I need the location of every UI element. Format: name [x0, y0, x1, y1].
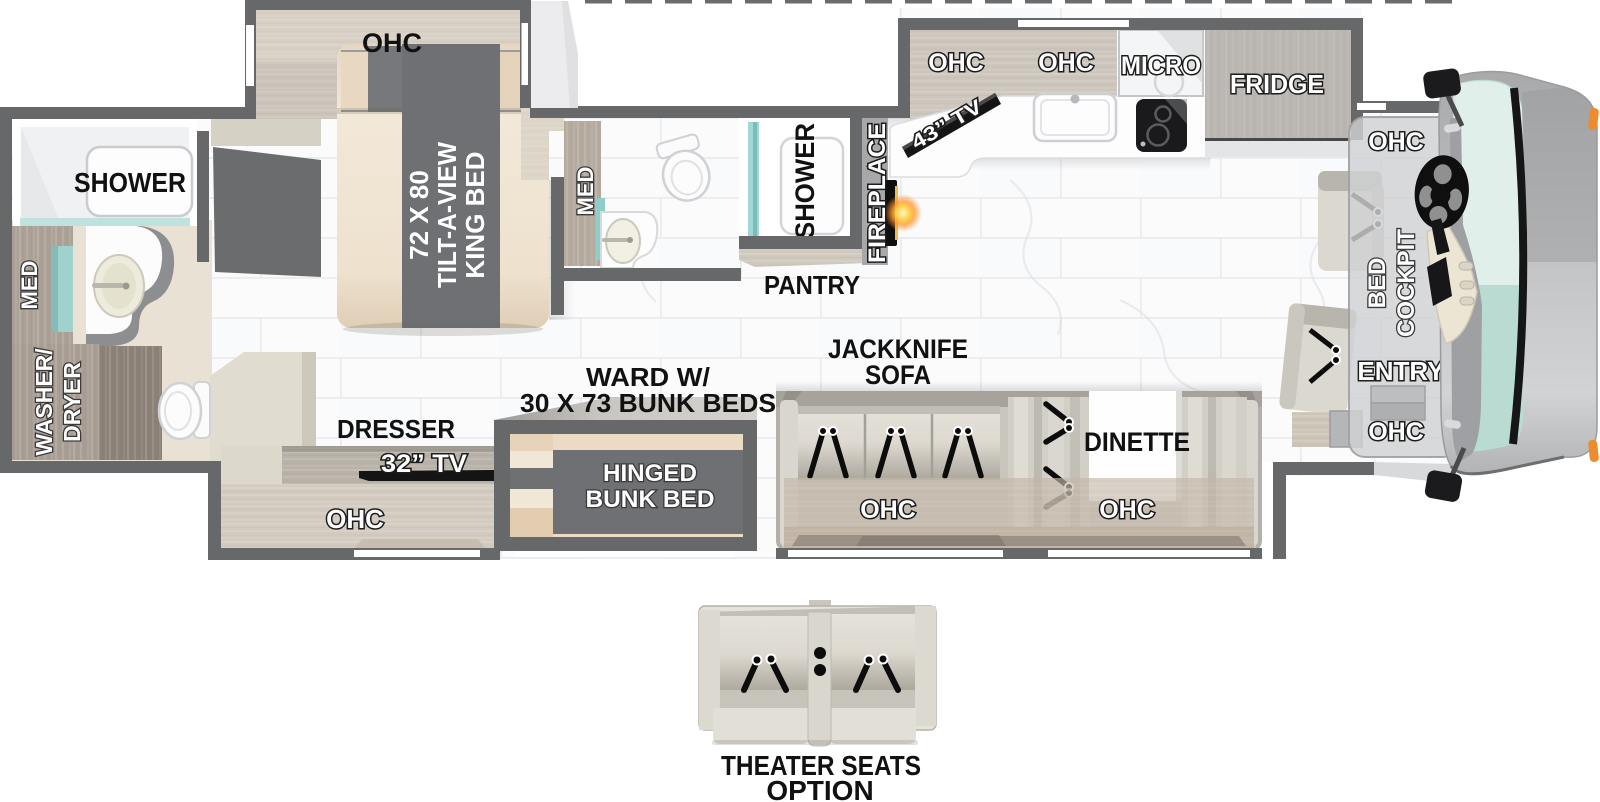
svg-text:ENTRY: ENTRY: [1357, 356, 1444, 386]
svg-text:SOFA: SOFA: [865, 360, 931, 390]
svg-text:72 X 80: 72 X 80: [404, 170, 434, 260]
svg-text:OHC: OHC: [1099, 496, 1155, 524]
svg-text:MICRO: MICRO: [1121, 52, 1201, 80]
svg-text:COCKPIT: COCKPIT: [1393, 229, 1420, 337]
svg-text:MED: MED: [573, 167, 598, 216]
svg-text:BED: BED: [1364, 258, 1391, 309]
svg-text:DRESSER: DRESSER: [337, 414, 455, 444]
svg-text:OHC: OHC: [1368, 128, 1424, 156]
svg-text:BUNK BED: BUNK BED: [586, 486, 715, 513]
svg-text:OHC: OHC: [860, 496, 916, 524]
svg-text:OHC: OHC: [362, 28, 422, 58]
svg-text:SHOWER: SHOWER: [790, 123, 820, 239]
svg-text:TILT-A-VIEW: TILT-A-VIEW: [432, 142, 462, 288]
svg-text:WASHER/: WASHER/: [31, 348, 57, 456]
svg-text:FRIDGE: FRIDGE: [1230, 69, 1324, 99]
svg-text:OHC: OHC: [928, 49, 984, 77]
svg-text:30 X 73 BUNK BEDS: 30 X 73 BUNK BEDS: [520, 388, 776, 418]
svg-text:SHOWER: SHOWER: [74, 167, 186, 198]
svg-text:MED: MED: [17, 261, 42, 310]
svg-text:OHC: OHC: [1368, 418, 1424, 446]
svg-text:32” TV: 32” TV: [381, 450, 467, 478]
svg-text:DRYER: DRYER: [59, 362, 85, 442]
svg-text:HINGED: HINGED: [603, 460, 697, 487]
svg-text:KING BED: KING BED: [460, 151, 490, 278]
svg-text:PANTRY: PANTRY: [764, 270, 860, 300]
svg-text:FIREPLACE: FIREPLACE: [864, 123, 891, 263]
svg-text:OHC: OHC: [1038, 49, 1094, 77]
svg-text:DINETTE: DINETTE: [1084, 427, 1190, 457]
svg-text:OPTION: OPTION: [766, 775, 873, 802]
svg-text:OHC: OHC: [326, 504, 384, 534]
